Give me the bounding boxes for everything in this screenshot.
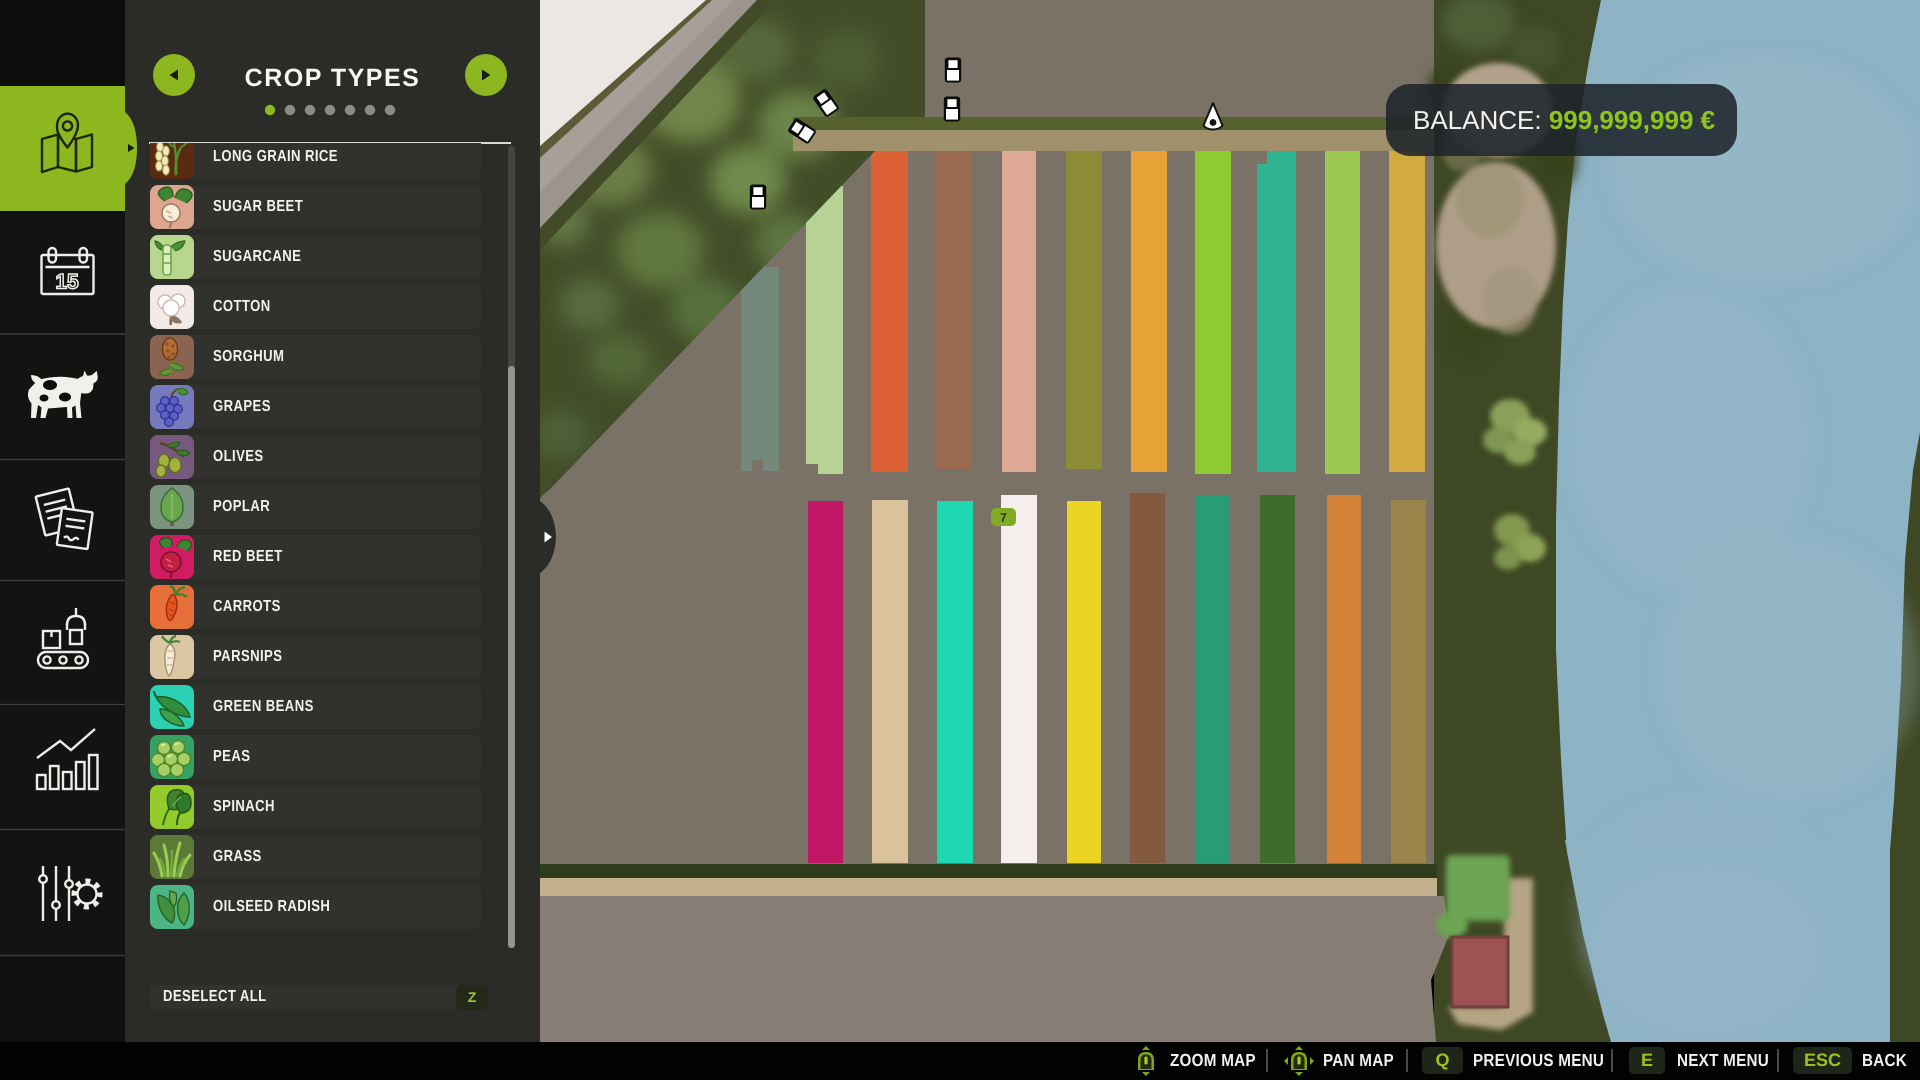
svg-text:15: 15	[55, 271, 79, 294]
svg-text:7: 7	[1000, 511, 1007, 525]
